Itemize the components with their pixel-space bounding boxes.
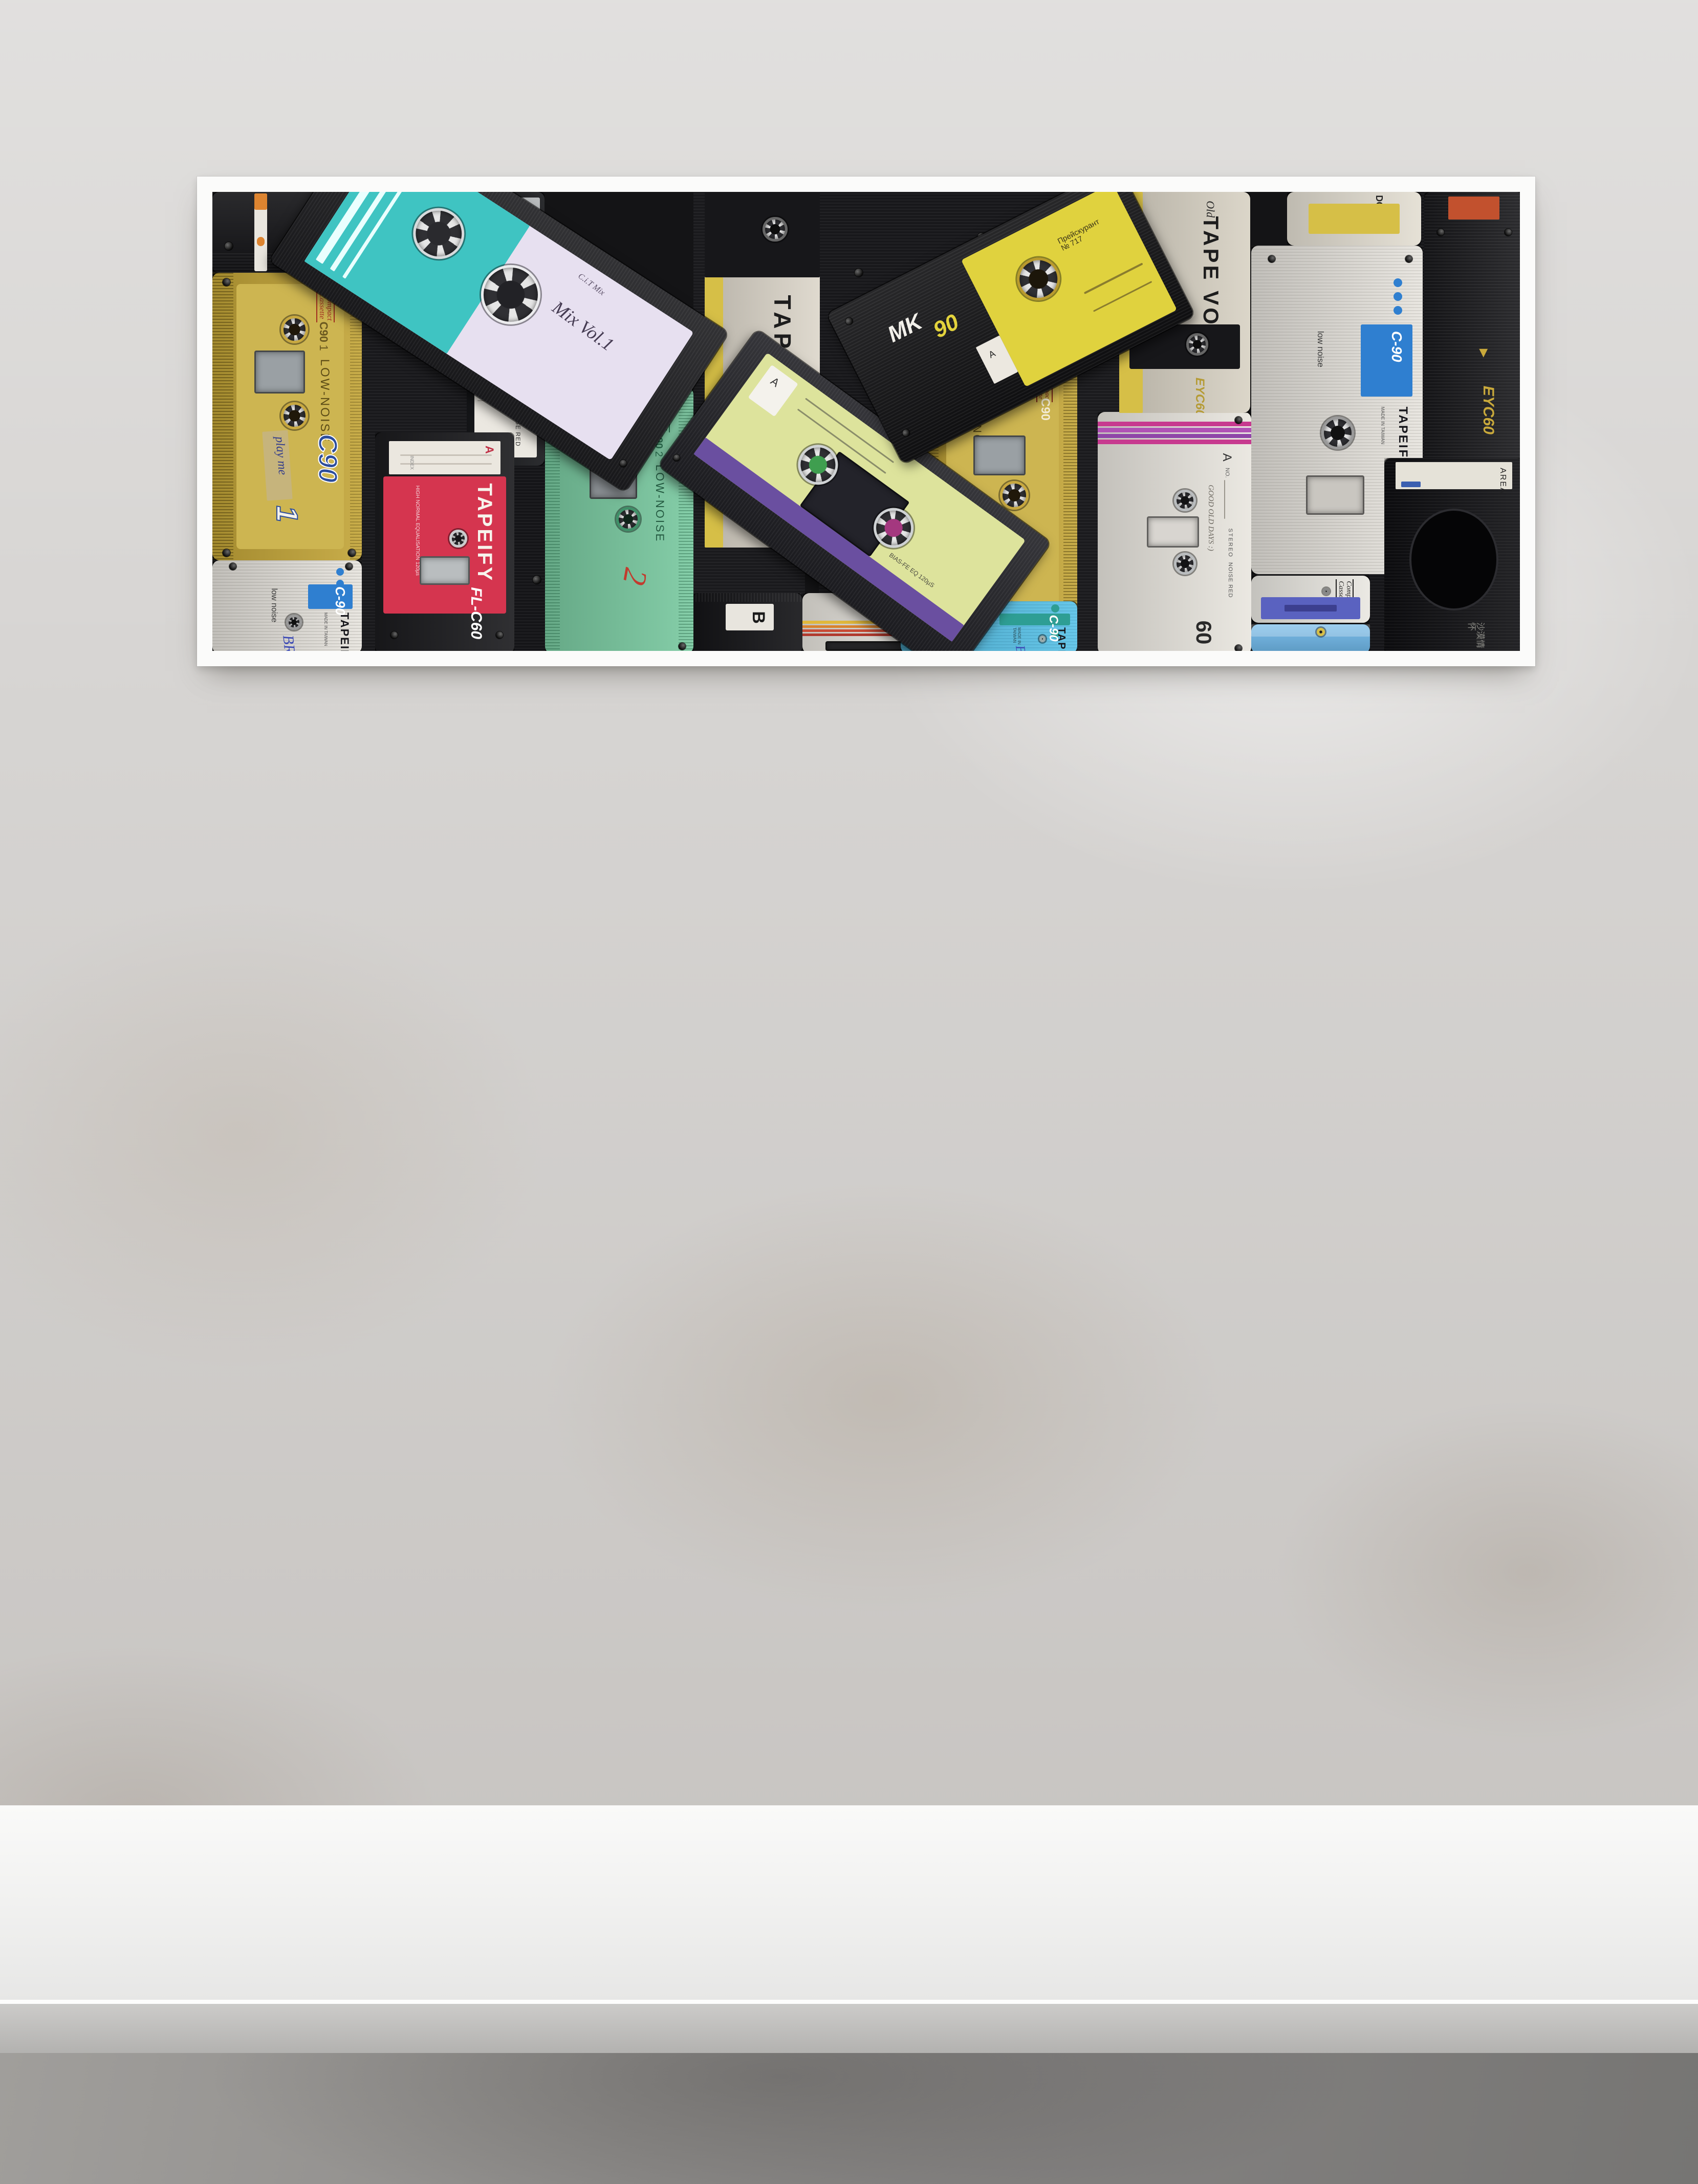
label-text: MADE IN TAIWAN	[1380, 407, 1385, 445]
label-text: C90	[317, 322, 329, 342]
label-text: C-90	[333, 586, 347, 615]
cassette-part-label-text: MADE IN TAIWAN	[1380, 407, 1385, 445]
cassette-part-label-text: LOW-NOISE	[654, 465, 665, 543]
reel-icon	[1039, 636, 1046, 642]
label-text: C90	[1039, 398, 1051, 421]
cassette-part-label-text: AREA	[1498, 468, 1507, 494]
cassette-shell: Compact Cassette	[1251, 576, 1370, 623]
label-band	[705, 192, 820, 277]
cassette-shell: AREA沙漠情怀	[1384, 458, 1520, 651]
cassette-shell: AINDEXTAPEIFYHIGH NORMAL EQUALISATION 12…	[375, 432, 514, 651]
cassette-lightblue-bottom	[1251, 624, 1370, 651]
cassette-poster-print: Compact CassetteC901LOW-NOISEC90play me1…	[212, 192, 1520, 651]
cassette-part-label-text: low noise	[270, 588, 278, 623]
shell-ridges	[212, 273, 233, 560]
dot-icon	[1394, 278, 1402, 287]
reel-icon	[763, 217, 788, 242]
label-text: LOW-NOISE	[318, 359, 330, 443]
label-text: 2	[654, 451, 664, 457]
cassette-part-label-text: 1	[317, 345, 329, 351]
cassette-shell: DO	[1287, 192, 1421, 246]
cassette-part-label-text: TAPEIFY	[474, 483, 495, 582]
label-text: C-90	[1389, 331, 1404, 362]
label-band	[1251, 624, 1370, 637]
reel-icon	[1317, 628, 1325, 636]
cassette-part-label-text: HIGH NORMAL EQUALISATION 120µs	[415, 486, 420, 576]
cassette-part-label-text: EYC60	[1480, 386, 1496, 434]
label-text: A	[483, 446, 494, 454]
stripe	[1098, 434, 1251, 439]
cassette-area-black: AREA沙漠情怀	[1384, 458, 1520, 651]
tape-window	[254, 351, 305, 394]
screw-icon	[1437, 229, 1444, 236]
cassette-part-label-text: INDEX	[409, 455, 414, 470]
label-text: HIGH NORMAL EQUALISATION 120µs	[415, 486, 420, 576]
cassette-part-handwriting: 2	[617, 565, 653, 587]
label-text: C90	[314, 434, 341, 483]
desk-apron	[0, 2004, 1698, 2053]
label-text: TAPEIFY	[1056, 627, 1066, 651]
label-text: MADE IN TAIWAN	[323, 613, 328, 646]
label-text: LOW-NOISE	[654, 465, 665, 543]
label-text: FL-C60	[468, 587, 484, 639]
cassette-part-label-text: 2	[654, 451, 664, 457]
cassette-part-label-text: NO.	[1224, 468, 1230, 478]
label-text: low noise	[1316, 331, 1325, 367]
tape-window	[1147, 516, 1199, 548]
cassette-part-label-text: ▶	[1478, 349, 1490, 358]
room-photo: Compact CassetteC901LOW-NOISEC90play me1…	[0, 0, 1698, 2184]
stripe	[1098, 428, 1251, 432]
cassette-part-handwriting: BR	[279, 634, 297, 651]
reel-icon	[449, 530, 467, 548]
cassette-part-label-text: low noise	[1316, 331, 1325, 367]
label-text: TAPEIFY	[474, 483, 495, 582]
desk-front-edge	[0, 2000, 1698, 2004]
label-stripes	[1098, 422, 1251, 446]
cassette-magenta-60: ANO.GOOD OLD DAYS :)STEREONOISE RED60	[1098, 412, 1251, 651]
reel-icon	[1174, 553, 1196, 575]
screw-icon	[223, 549, 230, 557]
label-band	[1309, 204, 1400, 234]
stripe	[1098, 440, 1251, 444]
label-dots	[1394, 278, 1402, 315]
label-text: Old	[1205, 201, 1216, 217]
label-text: low noise	[270, 588, 278, 623]
label-text: INDEX	[409, 455, 414, 470]
cassette-part-label-text: TAPEIFY	[338, 613, 350, 651]
desk-top-surface	[0, 1805, 1698, 2000]
tape-window	[420, 556, 470, 585]
cassette-part-label-text: C90	[1039, 398, 1051, 421]
cassette-shell: C-90TAPEIFYMADE IN TAIWANlow noiseBR	[212, 560, 362, 651]
shell-ridges	[692, 593, 802, 602]
label-text: 1	[317, 345, 329, 351]
label-text: 60	[1192, 621, 1214, 645]
label-text: ▶	[1478, 349, 1490, 358]
cassette-white-yellowband-top: DO	[1287, 192, 1421, 246]
label-text: B	[750, 611, 768, 624]
reel-window-oval	[1409, 509, 1498, 610]
under-desk-shadow	[0, 2053, 1698, 2184]
label-band	[1401, 482, 1421, 487]
cassette-part-label-text: 60	[1192, 621, 1214, 645]
cassette-part-label-text: 1	[272, 506, 302, 522]
cassette-shell: B	[692, 593, 802, 651]
screw-icon	[496, 631, 503, 639]
reel-icon	[616, 507, 640, 531]
screw-icon	[1235, 645, 1242, 651]
label-text: TAPEIFY	[338, 613, 350, 651]
dot-icon	[1394, 292, 1402, 301]
label-text: GOOD OLD DAYS :)	[1207, 485, 1214, 551]
dot-icon	[1052, 604, 1060, 613]
stripe	[1098, 422, 1251, 426]
poster-frame: Compact CassetteC901LOW-NOISEC90play me1…	[197, 177, 1535, 666]
tape-window	[1306, 475, 1364, 515]
label-text: BR	[279, 634, 297, 651]
cassette-part-label-text: NOISE RED	[1227, 562, 1233, 598]
label-band	[1448, 196, 1500, 220]
cassette-shell: Compact CassetteC901LOW-NOISEC90play me1	[212, 273, 362, 560]
cassette-part-label-text: STEREO	[1227, 529, 1233, 558]
label-band	[257, 237, 265, 246]
label-text: NOISE RED	[1227, 562, 1233, 598]
label-text: A	[1221, 453, 1233, 462]
label-text: 1	[272, 506, 302, 522]
screw-icon	[533, 576, 541, 584]
label-text: AREA	[1498, 468, 1507, 494]
tape-window	[825, 641, 907, 651]
cassette-part-label-text: B	[750, 611, 768, 624]
reel-icon	[1321, 417, 1354, 449]
label-text: play me	[273, 436, 289, 475]
reel-icon	[1000, 481, 1029, 510]
cassette-part-label-text: C90	[317, 322, 329, 342]
tape-window	[973, 435, 1025, 475]
cassette-shell	[1251, 624, 1370, 651]
label-text: 2	[617, 565, 653, 587]
label-band	[1224, 480, 1225, 519]
screw-icon	[225, 242, 233, 250]
reel-icon	[1323, 588, 1330, 595]
cassette-black-b: B	[692, 593, 802, 651]
cassette-part-label-text: LOW-NOISE	[318, 359, 330, 443]
cassette-part-label-text: EYC60	[1193, 378, 1206, 413]
label-band	[254, 193, 267, 210]
cassette-compact-cassette-blue: Compact Cassette	[1251, 576, 1370, 623]
reel-icon	[281, 316, 308, 343]
cassette-part-label-text: C-90	[1389, 331, 1404, 362]
screw-icon	[855, 269, 863, 277]
cassette-part-handwriting: GOOD OLD DAYS :)	[1207, 485, 1214, 551]
cassette-part-label-text: A	[1221, 453, 1233, 462]
cassette-part-label-text: C90	[314, 434, 341, 483]
cassette-part-label-text: TAPEIFY	[1056, 627, 1066, 651]
cassette-part-label-text: C-90	[333, 586, 347, 615]
cassette-white-tapeify-bottom-left: C-90TAPEIFYMADE IN TAIWANlow noiseBR	[212, 560, 362, 651]
reel-icon	[281, 402, 308, 429]
screw-icon	[390, 631, 398, 639]
label-text: 沙漠情怀	[1467, 622, 1485, 651]
dot-icon	[336, 568, 344, 576]
cassette-yellow-c90-left: Compact CassetteC901LOW-NOISEC90play me1	[212, 273, 362, 560]
cassette-part-handwriting: play me	[273, 436, 289, 475]
label-text: EYC60	[1193, 378, 1206, 413]
label-band	[1285, 605, 1337, 611]
reel-icon	[1186, 333, 1208, 355]
cassette-part-handwriting: Old	[1205, 201, 1216, 217]
dot-icon	[1394, 306, 1402, 315]
reel-icon	[1174, 490, 1196, 512]
screw-icon	[348, 549, 356, 557]
label-text: EYC60	[1480, 386, 1496, 434]
cassette-part-label-text: A	[483, 446, 494, 454]
label-text: STEREO	[1227, 529, 1233, 558]
cassette-part-label-text: 沙漠情怀	[1467, 622, 1485, 651]
cassette-part-label-text: MADE IN TAIWAN	[323, 613, 328, 646]
label-text: NO.	[1224, 468, 1230, 478]
cassette-shell: ANO.GOOD OLD DAYS :)STEREONOISE RED60	[1098, 412, 1251, 651]
cassette-red-tapeify-fl-c60: AINDEXTAPEIFYHIGH NORMAL EQUALISATION 12…	[375, 432, 514, 651]
screw-icon	[1505, 229, 1512, 236]
cassette-part-label-text: FL-C60	[468, 587, 484, 639]
